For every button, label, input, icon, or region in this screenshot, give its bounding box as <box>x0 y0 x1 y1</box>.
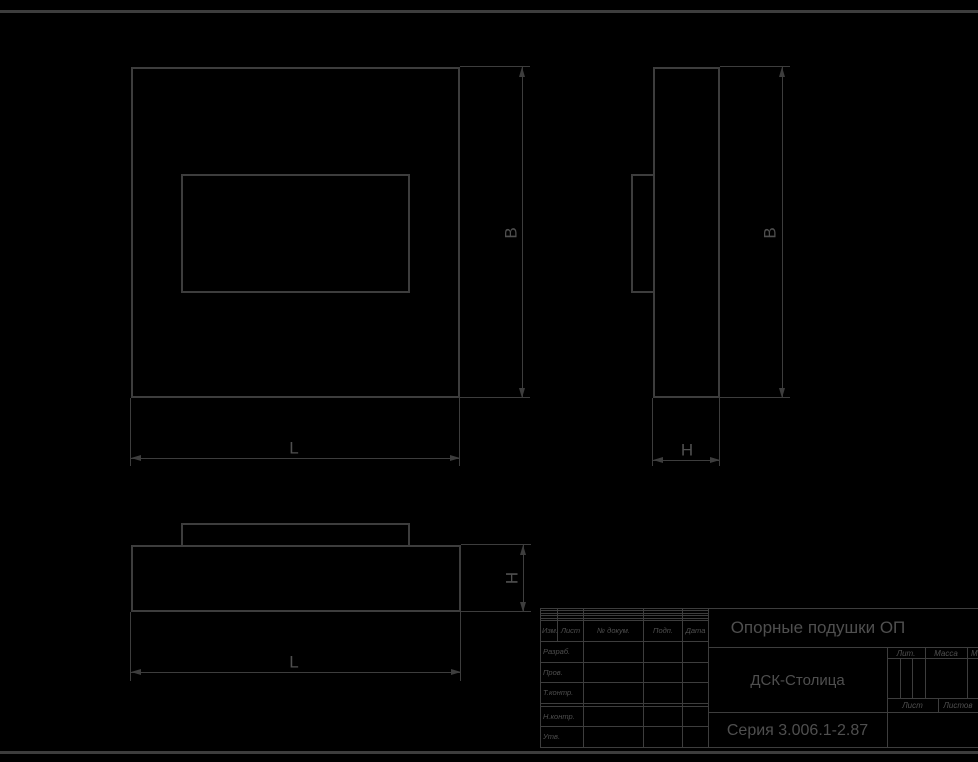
front-l-arrow-left-icon <box>131 455 141 461</box>
title-block-line <box>912 658 913 698</box>
prov-label: Пров. <box>541 662 584 683</box>
cell <box>683 706 709 727</box>
data-header: Дата <box>683 621 709 642</box>
side-b-dimension-line <box>782 67 783 398</box>
side-b-arrow-up-icon <box>779 67 785 77</box>
front-view-inner-recess <box>181 174 410 293</box>
sheet-border-top <box>0 10 978 13</box>
cell <box>584 662 644 683</box>
organization-name: ДСК-Столица <box>708 672 887 689</box>
side-view-ledge <box>631 174 655 293</box>
cell <box>584 641 644 662</box>
sheets-label: Листов <box>938 702 978 710</box>
revision-header-row: Изм. Лист № докум. Подп. Дата <box>541 621 709 642</box>
bottom-l-dimension-label: L <box>289 654 298 671</box>
side-h-arrow-left-icon <box>653 457 663 463</box>
razrab-label: Разраб. <box>541 641 584 662</box>
docnum-header: № докум. <box>584 621 644 642</box>
side-h-extension-right <box>719 398 720 466</box>
title-block-line <box>708 608 978 609</box>
bottom-view-cap <box>181 523 410 547</box>
cell <box>644 662 683 683</box>
product-title: Опорные подушки ОП <box>708 618 928 638</box>
title-block-line <box>900 658 901 698</box>
title-block-line <box>887 647 888 748</box>
nkontr-label: Н.контр. <box>541 706 584 727</box>
sheet-label: Лист <box>887 702 938 710</box>
cell <box>584 683 644 704</box>
scale-header: Масштаб <box>971 650 978 658</box>
tkontr-label: Т.контр. <box>541 683 584 704</box>
cell <box>683 641 709 662</box>
front-b-arrow-down-icon <box>519 388 525 398</box>
signature-row: Т.контр. <box>541 683 709 704</box>
cell <box>683 683 709 704</box>
drawing-sheet: B L B H H L <box>0 0 978 762</box>
bottom-view-outline <box>131 545 461 612</box>
bottom-h-arrow-up-icon <box>520 545 526 555</box>
front-b-dimension-label: B <box>503 227 520 238</box>
mass-header: Масса <box>925 650 967 658</box>
cell <box>644 683 683 704</box>
title-block-line <box>708 647 978 648</box>
lit-header: Лит. <box>887 650 925 658</box>
list-header: Лист <box>558 621 584 642</box>
signature-row: Разраб. <box>541 641 709 662</box>
front-l-dimension-line <box>131 458 460 459</box>
bottom-h-arrow-down-icon <box>520 602 526 612</box>
side-h-extension-left <box>652 398 653 466</box>
bottom-l-arrow-left-icon <box>131 669 141 675</box>
title-block-revision-grid: Изм. Лист № докум. Подп. Дата Разраб. Пр… <box>540 608 709 748</box>
side-h-dimension-label: H <box>681 442 693 459</box>
front-b-dimension-line <box>522 67 523 398</box>
front-l-dimension-label: L <box>289 440 298 457</box>
front-l-arrow-right-icon <box>450 455 460 461</box>
cell <box>584 727 644 748</box>
front-b-arrow-up-icon <box>519 67 525 77</box>
cell <box>683 727 709 748</box>
cell <box>644 727 683 748</box>
title-block-line <box>887 698 978 699</box>
bottom-h-dimension-label: H <box>504 572 521 584</box>
signature-row: Пров. <box>541 662 709 683</box>
podp-header: Подп. <box>644 621 683 642</box>
cell <box>584 706 644 727</box>
side-view-outline <box>653 67 720 398</box>
side-b-dimension-label: B <box>762 227 779 238</box>
bottom-l-arrow-right-icon <box>451 669 461 675</box>
sheet-border-bottom <box>0 751 978 754</box>
bottom-l-dimension-line <box>131 672 461 673</box>
series-designation: Серия 3.006.1-2.87 <box>708 722 887 740</box>
title-block-line <box>708 712 978 713</box>
side-h-arrow-right-icon <box>710 457 720 463</box>
cell <box>683 662 709 683</box>
cell <box>644 706 683 727</box>
izm-header: Изм. <box>541 621 558 642</box>
title-block-line <box>708 747 978 748</box>
signature-row: Н.контр. <box>541 706 709 727</box>
utv-label: Утв. <box>541 727 584 748</box>
side-b-arrow-down-icon <box>779 388 785 398</box>
cell <box>644 641 683 662</box>
signature-row: Утв. <box>541 727 709 748</box>
title-block-line <box>967 647 968 698</box>
